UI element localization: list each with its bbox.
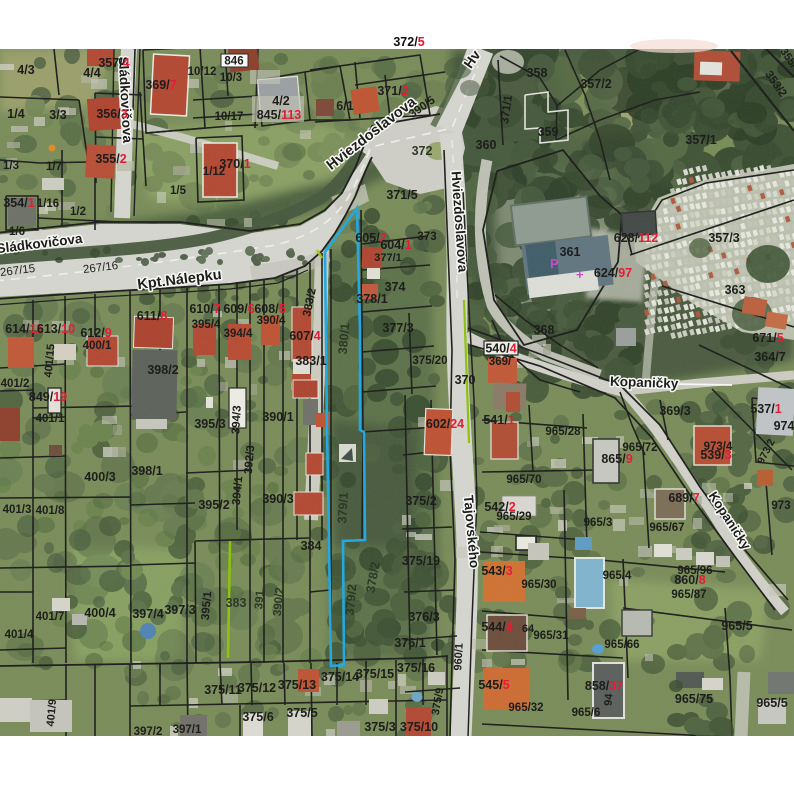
svg-text:372/5: 372/5 <box>393 35 424 49</box>
